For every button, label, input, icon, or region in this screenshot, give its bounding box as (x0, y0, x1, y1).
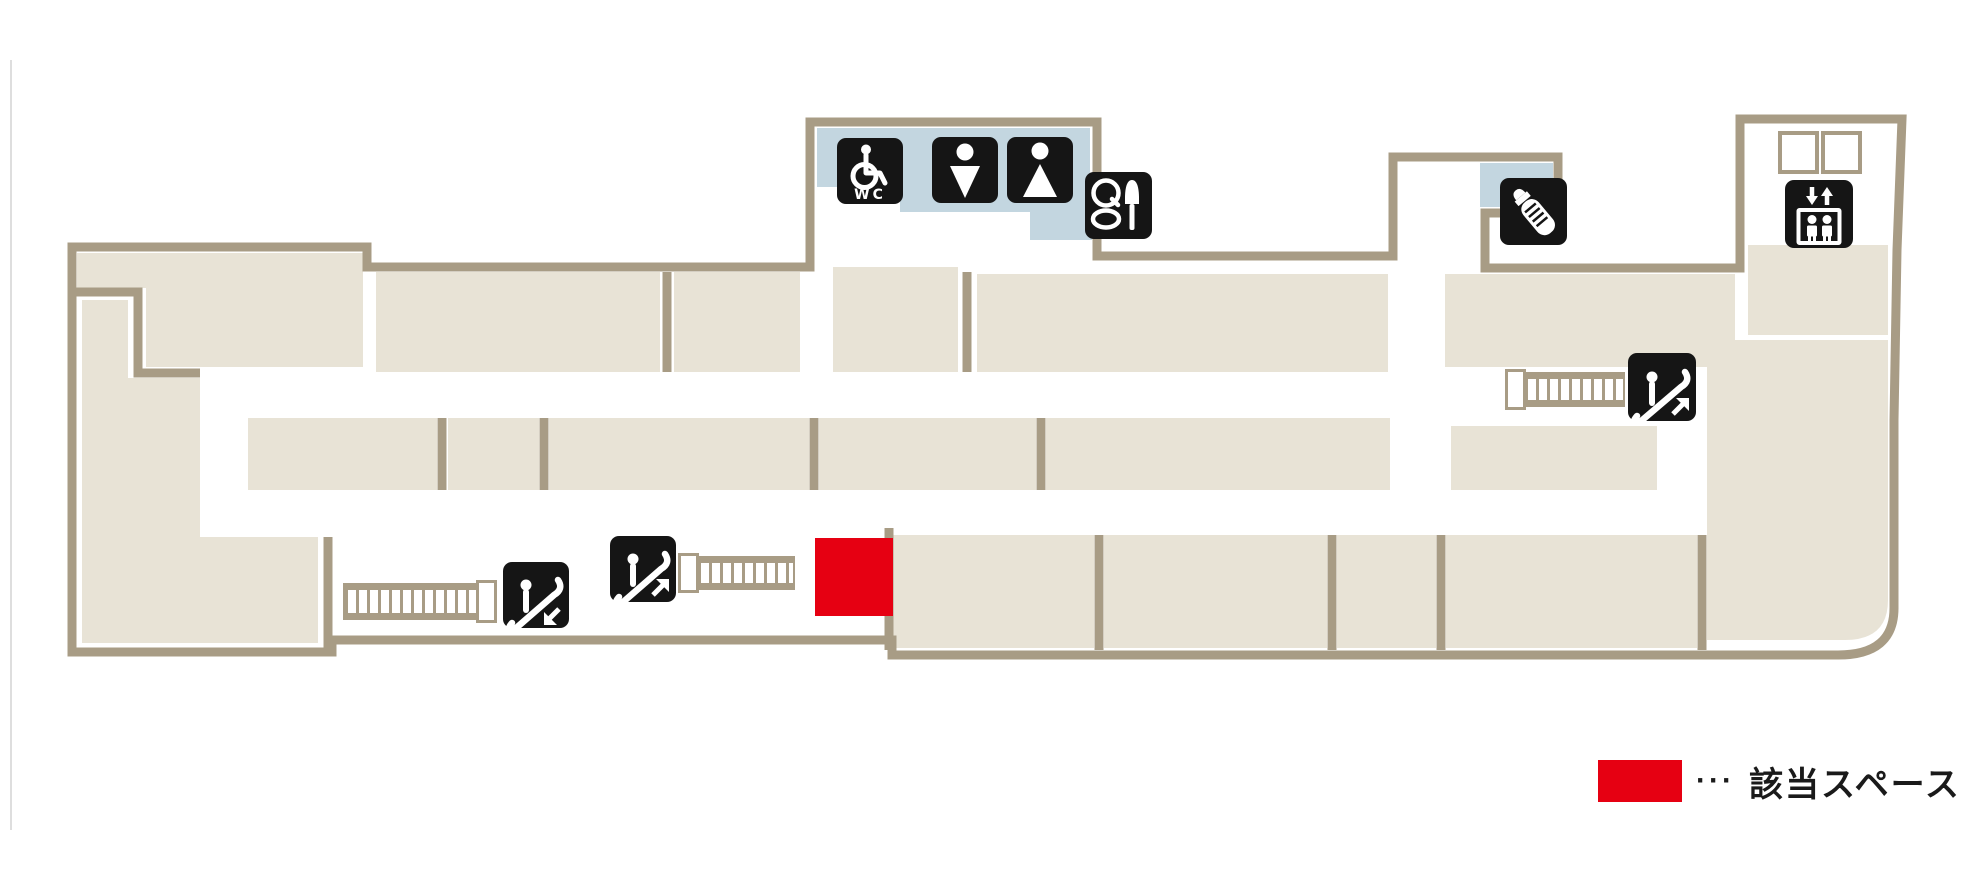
shop-block (674, 272, 800, 372)
escalator-landing (476, 580, 497, 623)
elevator-shaft (1780, 133, 1817, 172)
escalator-symbol (343, 583, 490, 620)
shop-block (819, 418, 1036, 490)
wheelchair-wc-icon: WC (837, 138, 903, 204)
elevator-icon (1785, 180, 1853, 248)
mens-toilet-icon (932, 137, 998, 203)
elevator-shaft (1823, 133, 1860, 172)
floor-map: WC (0, 0, 1980, 881)
shop-block (1337, 535, 1436, 648)
womens-toilet-icon (1007, 137, 1073, 203)
shop-block (893, 535, 1094, 648)
escalator-symbol (685, 556, 795, 590)
escalator-rails (343, 583, 490, 620)
escalator-rails (685, 556, 795, 590)
shop-block (1748, 245, 1888, 335)
shop-block (1104, 535, 1327, 648)
shop-block (1451, 426, 1657, 490)
shop-block (833, 267, 958, 372)
restroom-area-highlight (1030, 212, 1092, 240)
legend-dots: ··· (1696, 764, 1735, 798)
wc-label: WC (854, 187, 886, 203)
restroom-areas (817, 128, 1553, 240)
legend-swatch (1598, 760, 1682, 802)
legend: ··· 該当スペース (1598, 758, 1961, 804)
baby-room-icon (1500, 178, 1567, 245)
shop-block (376, 272, 660, 372)
escalator-up-icon (1628, 353, 1696, 422)
shop-block (1046, 418, 1390, 490)
powder-room-icon (1085, 172, 1152, 239)
shop-block (549, 418, 809, 490)
shop-block (1707, 340, 1888, 640)
escalator-rails (1512, 372, 1625, 407)
target-space-marker (815, 538, 893, 616)
shop-block (977, 274, 1388, 372)
shop-block (448, 418, 539, 490)
escalator-landing (678, 553, 699, 593)
elevator-shafts (1780, 133, 1860, 172)
floor-map-page: WC (0, 0, 1980, 881)
shop-block (1445, 274, 1735, 367)
escalator-up-icon (610, 536, 676, 603)
escalator-symbol (1512, 372, 1625, 407)
shop-block (1446, 535, 1697, 648)
escalator-down-icon (503, 562, 569, 629)
legend-label: 該当スペース (1749, 757, 1961, 806)
shop-block (248, 418, 437, 490)
escalator-landing (1505, 369, 1526, 410)
